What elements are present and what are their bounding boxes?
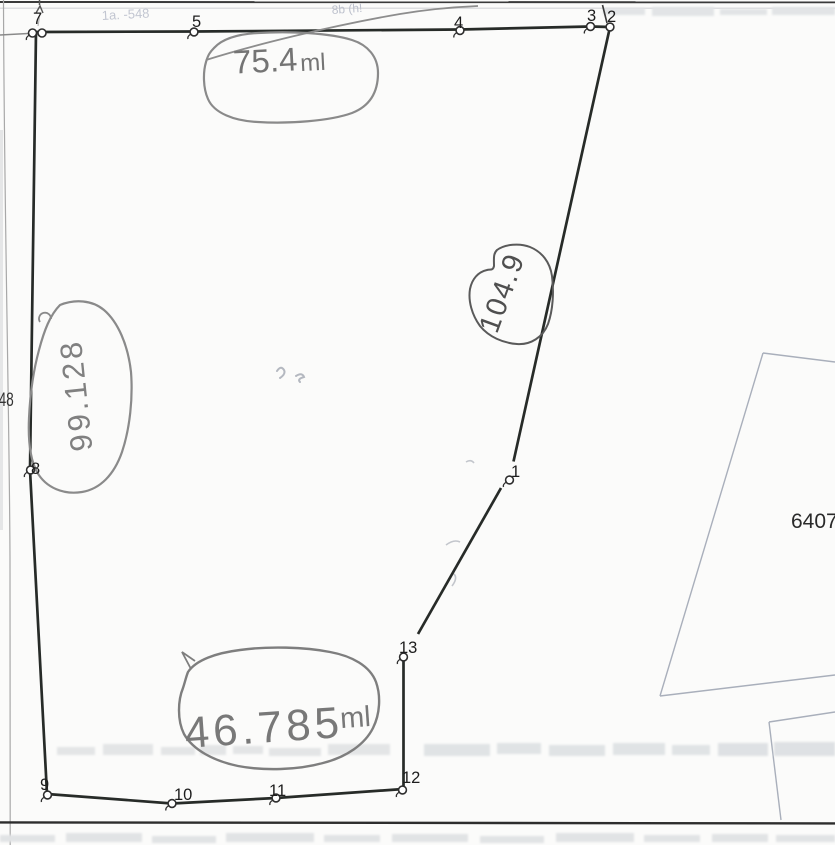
svg-text:3: 3 <box>587 7 596 25</box>
svg-text:4: 4 <box>454 14 463 32</box>
svg-text:8: 8 <box>31 460 40 478</box>
svg-text:10: 10 <box>174 786 192 804</box>
svg-text:8b (h!: 8b (h! <box>331 1 363 17</box>
svg-text:9: 9 <box>40 776 49 794</box>
svg-text:6407: 6407 <box>791 510 835 533</box>
svg-text:1: 1 <box>511 463 520 481</box>
svg-text:ml: ml <box>300 49 327 77</box>
svg-text:12: 12 <box>402 769 420 787</box>
svg-text:ml: ml <box>339 701 372 735</box>
svg-text:1a. -548: 1a. -548 <box>101 6 149 23</box>
svg-text:75.4: 75.4 <box>232 40 298 80</box>
svg-text:13: 13 <box>399 639 417 657</box>
svg-text:2: 2 <box>607 8 616 26</box>
svg-text:7: 7 <box>33 10 42 28</box>
svg-text:11: 11 <box>269 782 286 800</box>
svg-text:48: 48 <box>0 389 14 411</box>
svg-text:5: 5 <box>192 13 201 31</box>
